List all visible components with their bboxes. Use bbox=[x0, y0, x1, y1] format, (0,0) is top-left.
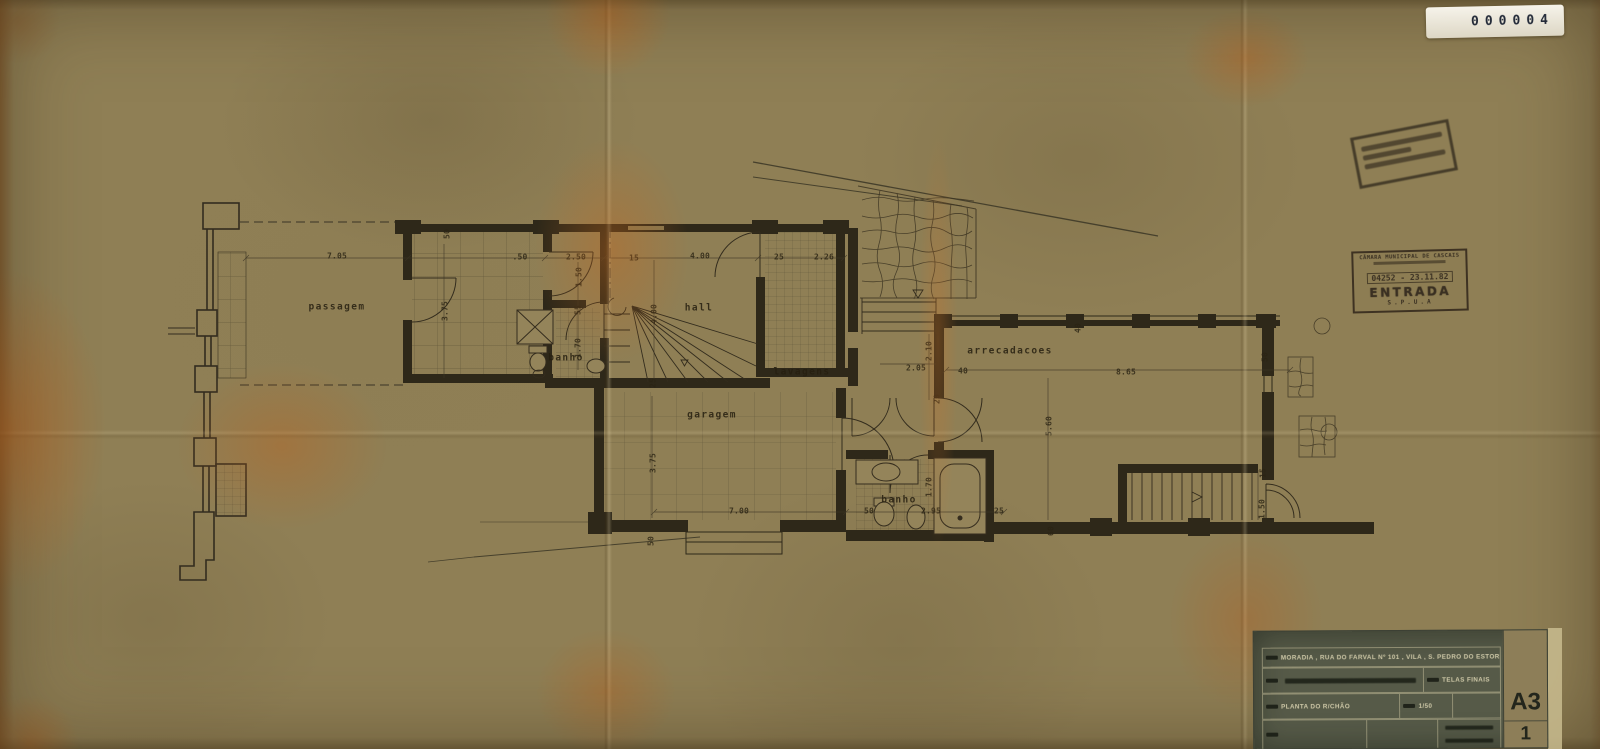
window-opening bbox=[628, 226, 664, 230]
title-row-project: MORADIA , RUA DO FARVAL Nº 101 , VILA , … bbox=[1262, 646, 1501, 667]
title-row-signatures bbox=[1262, 718, 1501, 748]
illegible-text bbox=[1446, 738, 1494, 742]
project-title: MORADIA , RUA DO FARVAL Nº 101 , VILA , … bbox=[1281, 653, 1500, 661]
illegible-label bbox=[1266, 733, 1278, 737]
paper-edge-strip bbox=[1548, 628, 1562, 749]
gate-paving bbox=[216, 464, 246, 516]
illegible-text bbox=[1285, 677, 1416, 683]
tree-circle bbox=[1314, 318, 1330, 334]
entry-steps bbox=[862, 290, 936, 334]
illegible-label bbox=[1266, 679, 1278, 683]
stamp-number: 04252 - 23.11.82 bbox=[1367, 271, 1452, 284]
hall-stair bbox=[604, 298, 758, 382]
archive-number: 000004 bbox=[1471, 13, 1564, 30]
entrada-stamp: CÂMARA MUNICIPAL DE CASCAIS 04252 - 23.1… bbox=[1351, 248, 1469, 313]
note-telas-finais: TELAS FINAIS bbox=[1442, 676, 1490, 683]
scanned-floor-plan-sheet: passagembanhohalllavagensgaragemarrecada… bbox=[0, 0, 1600, 749]
stamp-entrada-word: ENTRADA bbox=[1358, 284, 1462, 301]
illegible-text bbox=[1446, 725, 1494, 729]
illegible-label bbox=[1266, 705, 1278, 709]
title-row-client: TELAS FINAIS bbox=[1262, 666, 1501, 693]
title-block: MORADIA , RUA DO FARVAL Nº 101 , VILA , … bbox=[1253, 629, 1549, 749]
archive-number-sticker: 000004 bbox=[1426, 5, 1565, 39]
sheet-format-column: A3 1 bbox=[1503, 630, 1548, 747]
drawing-name: PLANTA DO R/CHÃO bbox=[1281, 703, 1350, 710]
stone-paving-court bbox=[858, 186, 976, 299]
illegible-label bbox=[1427, 678, 1439, 682]
illegible-label bbox=[1404, 704, 1416, 708]
right-stair bbox=[1132, 473, 1252, 520]
drawing-scale: 1/50 bbox=[1419, 702, 1433, 709]
tree-circle bbox=[1321, 424, 1337, 440]
sheet-size: A3 bbox=[1504, 630, 1547, 721]
illegible-text bbox=[1373, 260, 1446, 265]
patio-stones bbox=[1288, 318, 1337, 457]
left-paved-strip bbox=[218, 252, 246, 378]
illegible-label bbox=[1266, 656, 1278, 660]
sheet-number: 1 bbox=[1504, 721, 1547, 747]
title-row-drawing: PLANTA DO R/CHÃO 1/50 bbox=[1262, 692, 1501, 719]
